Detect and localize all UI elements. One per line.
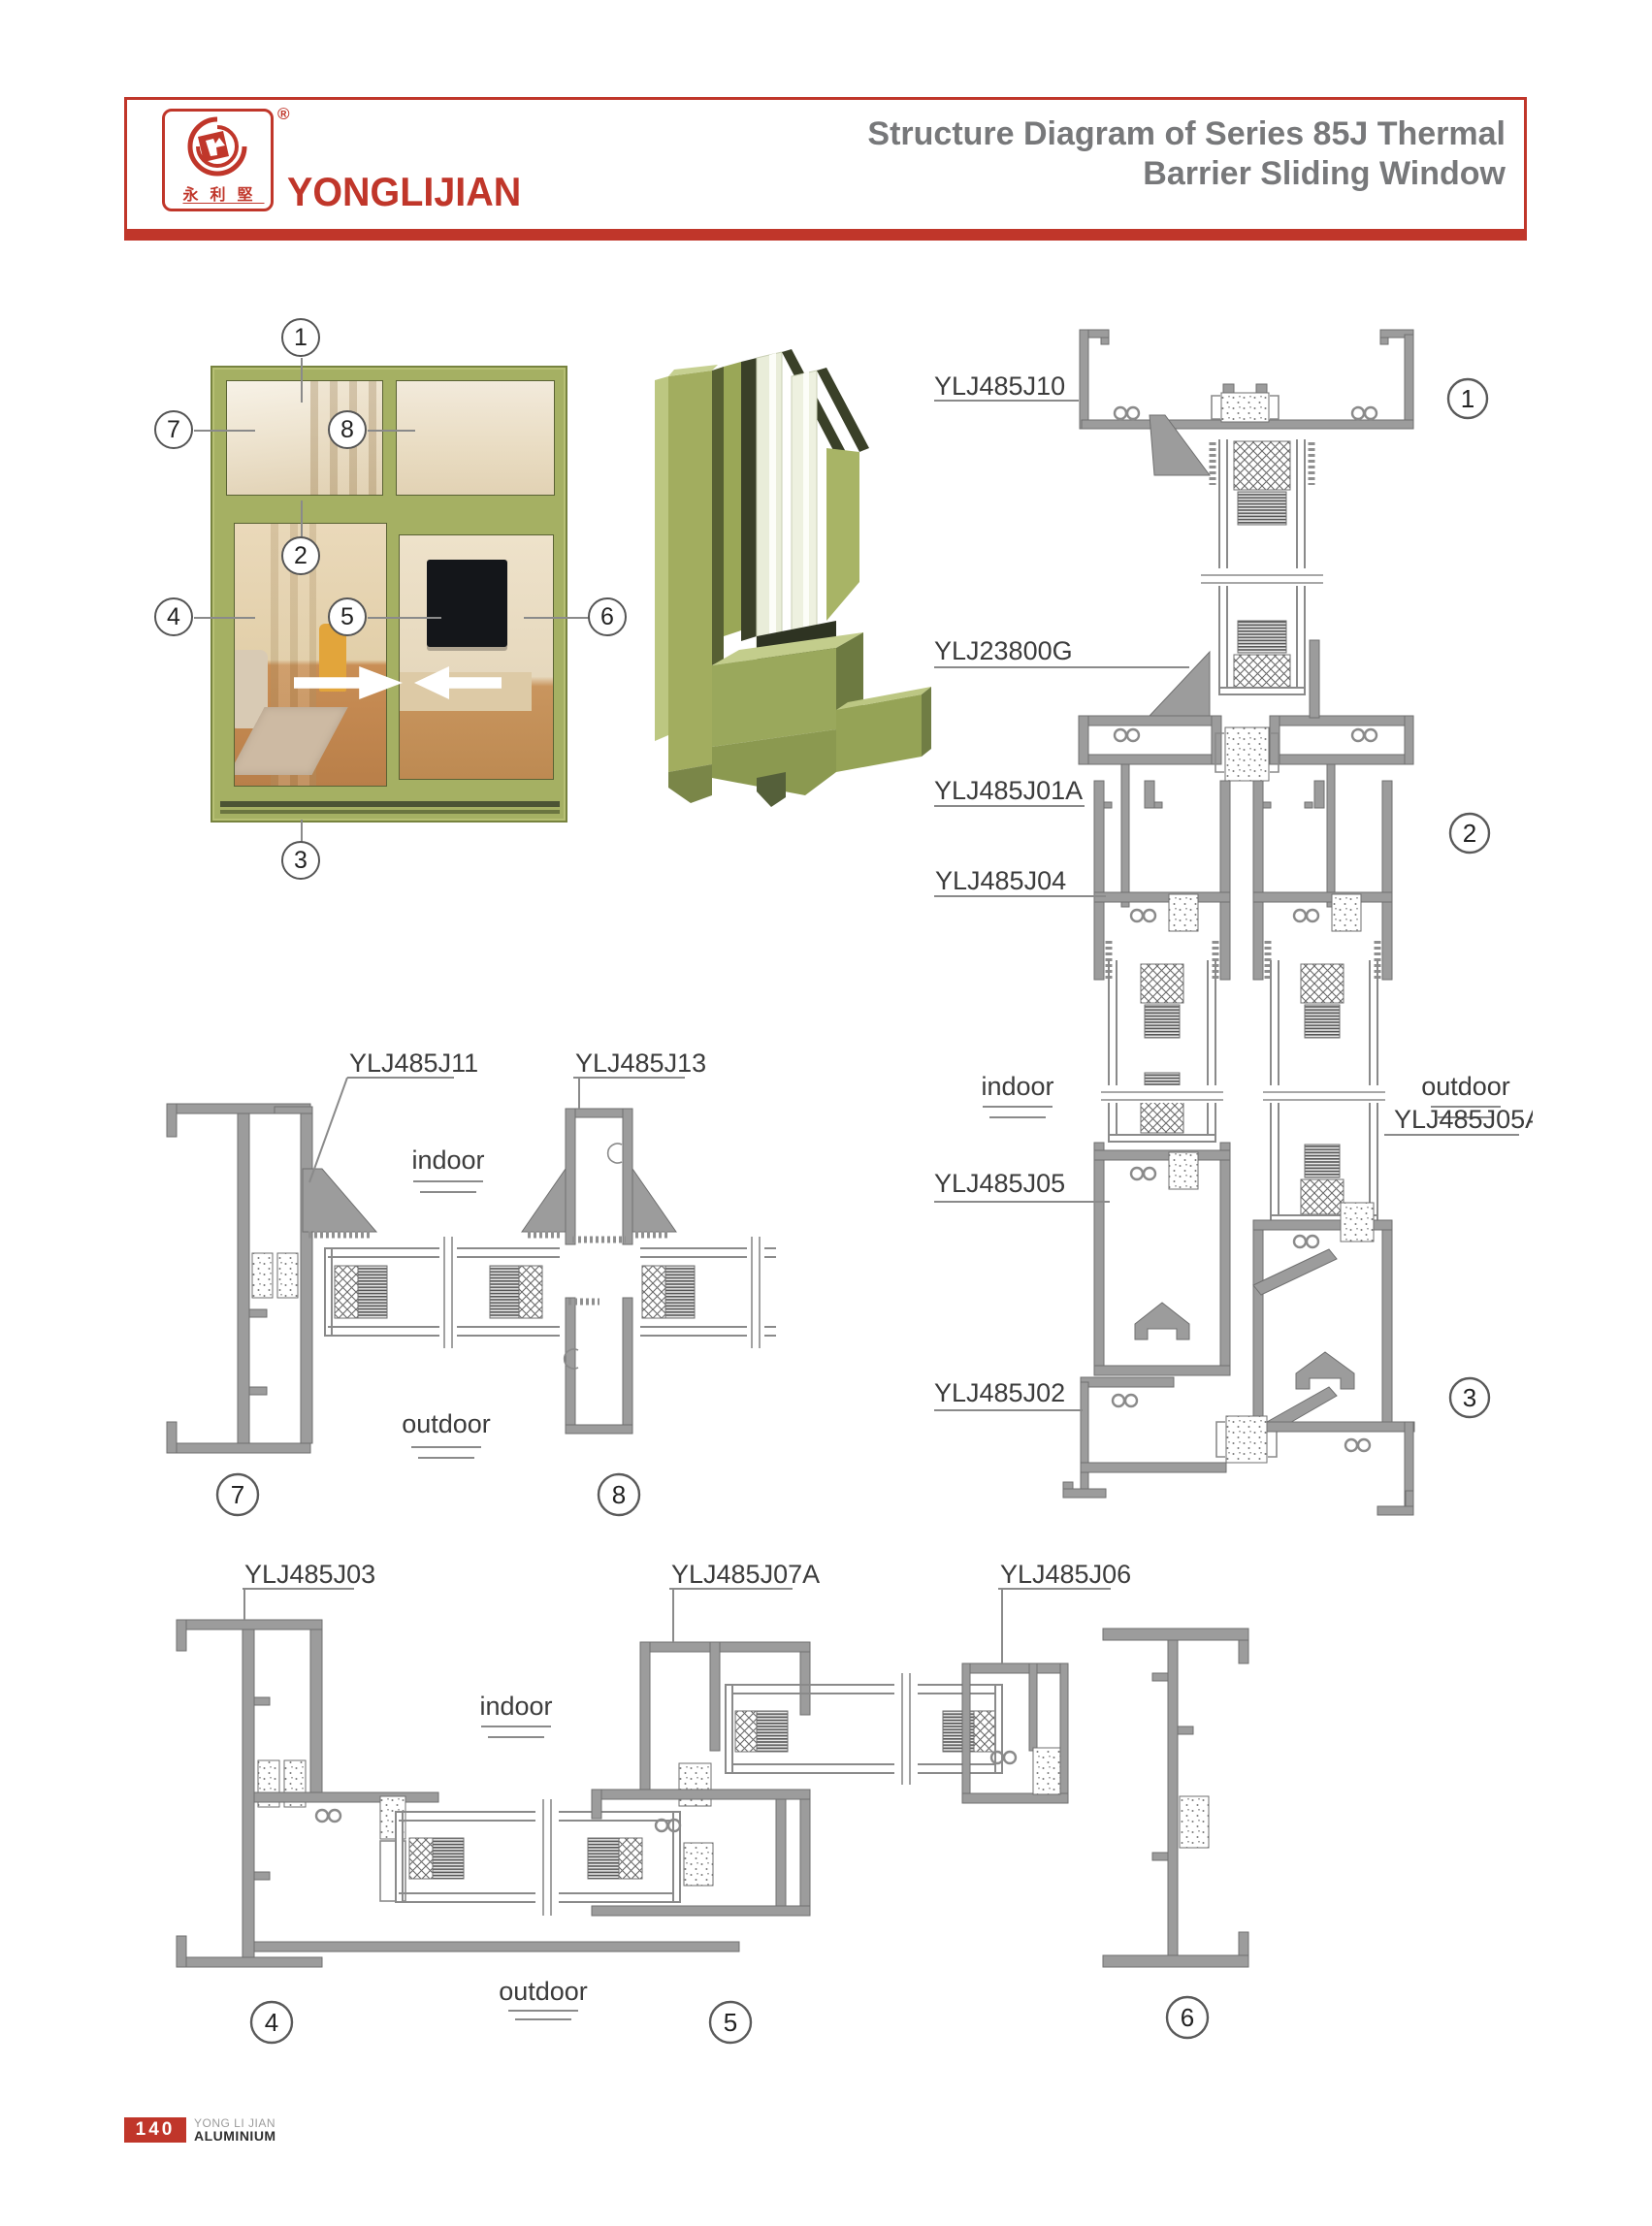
- jamb-profile-right: [1103, 1629, 1248, 1967]
- leader-line-3: [301, 820, 303, 842]
- part-label-interlock: YLJ485J07A: [671, 1560, 820, 1589]
- registered-mark: ®: [277, 105, 290, 124]
- page-title-line2: Barrier Sliding Window: [826, 154, 1506, 194]
- section-number-5: 5: [724, 2008, 737, 2037]
- jamb-profile-left: [167, 1104, 312, 1453]
- glazing-run-right: [640, 1237, 776, 1348]
- sill-profile: [1063, 1377, 1414, 1515]
- part-label-track: YLJ485J04: [935, 866, 1066, 895]
- leader-line-8: [368, 430, 415, 432]
- section-number-2: 2: [1463, 819, 1476, 848]
- sash-glazing-units: [1101, 960, 1385, 1222]
- catalog-page: 永利堅 ® YONGLIJIAN Structure Diagram of Se…: [0, 0, 1652, 2226]
- sash-top-rails: [1094, 781, 1392, 980]
- callout-circle-3: 3: [281, 841, 320, 880]
- glazing-run-lower: [396, 1799, 680, 1916]
- callout-circle-2: 2: [281, 536, 320, 575]
- leader-line-5: [368, 617, 441, 619]
- part-label-sash-left: YLJ485J05: [934, 1169, 1065, 1198]
- outdoor-label: outdoor: [1421, 1072, 1510, 1101]
- part-label-jamb: YLJ485J11: [349, 1048, 478, 1078]
- profile-render-3d: [631, 339, 931, 824]
- page-title-line1: Structure Diagram of Series 85J Thermal: [826, 114, 1506, 154]
- section-number-1: 1: [1461, 384, 1474, 413]
- part-label-corner: YLJ23800G: [934, 636, 1073, 665]
- section-number-4: 4: [265, 2008, 278, 2037]
- indoor-label: indoor: [411, 1145, 484, 1175]
- frame-channel-left: [254, 1792, 739, 1952]
- section-diagram-bottom: YLJ485J03 YLJ485J07A YLJ485J06 indoor ou…: [155, 1552, 1300, 2056]
- sliding-sash-right-glass: [399, 534, 554, 780]
- brand-name: YONGLIJIAN: [287, 169, 521, 215]
- section-number-7: 7: [231, 1480, 244, 1509]
- page-title: Structure Diagram of Series 85J Thermal …: [826, 114, 1506, 194]
- bottom-track-edge: [220, 810, 560, 814]
- part-label-interlock: YLJ485J13: [575, 1048, 706, 1078]
- leader-line-1: [301, 358, 303, 403]
- bottom-track: [220, 801, 560, 807]
- callout-circle-6: 6: [588, 597, 627, 636]
- outdoor-label: outdoor: [499, 1977, 588, 2006]
- glazing-run-left: [303, 1169, 560, 1348]
- callout-circle-8: 8: [328, 410, 367, 449]
- leader-line-2: [301, 500, 303, 539]
- section-diagram-right: YLJ485J10 1 YLJ23800G YLJ485J01A 2 YLJ48…: [922, 320, 1533, 1523]
- page-number-badge: 140: [124, 2117, 186, 2143]
- window-illustration: [211, 366, 567, 823]
- leader-line-7: [194, 430, 255, 432]
- part-label-sash-right: YLJ485J05A: [1394, 1105, 1533, 1134]
- section-number-3: 3: [1463, 1383, 1476, 1412]
- part-label-frame: YLJ485J06: [1000, 1560, 1131, 1589]
- section-diagram-middle: YLJ485J11 YLJ485J13 indoor outdoor 7 8: [155, 1048, 834, 1532]
- callout-circle-4: 4: [154, 597, 193, 636]
- part-label-sill: YLJ485J02: [934, 1378, 1065, 1407]
- outdoor-label: outdoor: [402, 1409, 491, 1438]
- section-number-8: 8: [612, 1480, 626, 1509]
- company-type: ALUMINIUM: [194, 2128, 276, 2144]
- leader-line-4: [194, 617, 255, 619]
- callout-circle-1: 1: [281, 318, 320, 357]
- leader-line-6: [524, 617, 589, 619]
- part-label-jamb: YLJ485J03: [244, 1560, 375, 1589]
- brand-chinese-name: 永利堅: [165, 181, 271, 205]
- indoor-label: indoor: [981, 1072, 1053, 1101]
- indoor-label: indoor: [479, 1692, 552, 1721]
- fixed-pane-upper-right: [396, 380, 555, 496]
- part-label-head: YLJ485J10: [934, 371, 1065, 401]
- brand-logo-icon: [165, 112, 271, 181]
- fixed-glazing-unit: [1201, 439, 1323, 694]
- header-red-bar: [124, 229, 1527, 241]
- callout-circle-7: 7: [154, 410, 193, 449]
- brand-logo: 永利堅: [162, 109, 274, 211]
- callout-circle-5: 5: [328, 597, 367, 636]
- section-number-6: 6: [1181, 2003, 1194, 2032]
- tv-screen: [427, 560, 506, 647]
- part-label-meeting: YLJ485J01A: [934, 776, 1083, 805]
